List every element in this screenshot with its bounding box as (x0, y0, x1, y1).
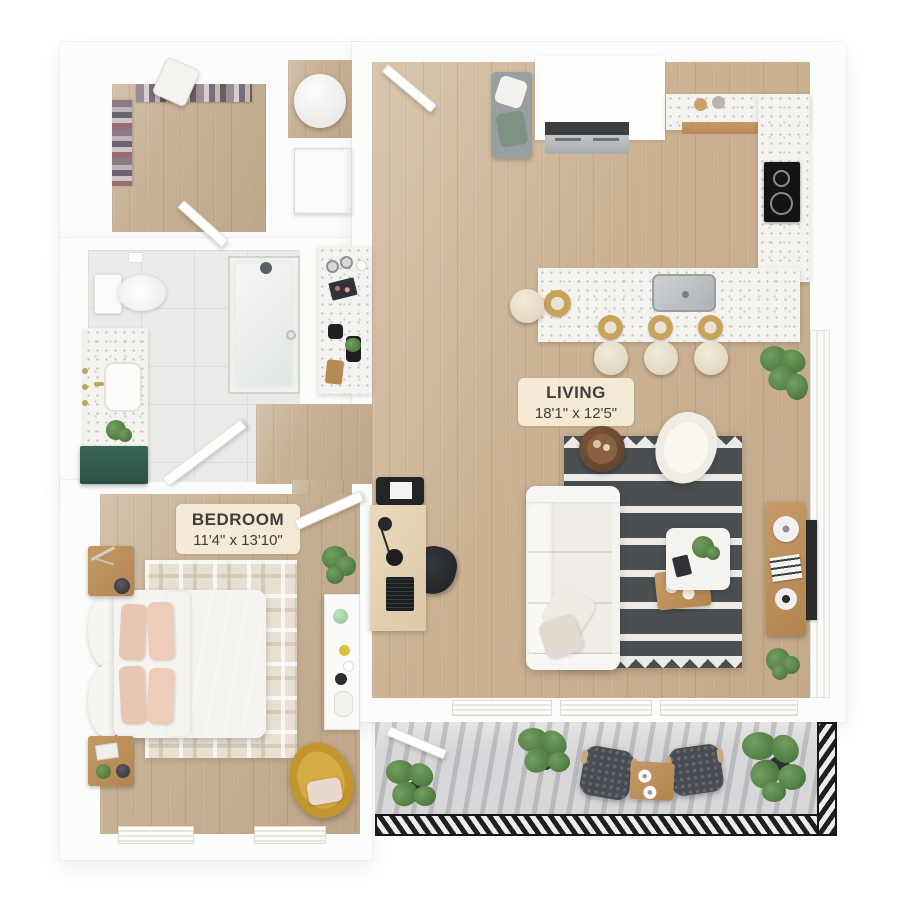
bed-pillow-4 (147, 668, 175, 725)
clothes-rail-left (112, 100, 132, 186)
burner-large (770, 192, 793, 215)
nook-glass-2 (340, 256, 353, 269)
sofa-armrest-bottom (526, 654, 620, 670)
gold-fixture-1 (82, 368, 88, 374)
dresser (324, 594, 360, 730)
patio-table (629, 761, 675, 801)
record-player (773, 516, 799, 542)
patio-chair-1 (578, 744, 636, 802)
dresser-tray (334, 691, 353, 717)
floor-plan: LIVING 18'1" x 12'5" (0, 0, 900, 900)
bedroom-dimensions: 11'4" x 13'10" (193, 532, 283, 549)
counter-plate-1 (694, 98, 707, 111)
bed-pillow-2 (147, 602, 175, 661)
place-setting-3 (648, 315, 673, 340)
nightstand-lamp-2 (116, 764, 130, 778)
place-setting-4 (698, 315, 723, 340)
water-heater (294, 74, 346, 128)
nightstand-books (95, 743, 119, 761)
living-window-bottom-1 (452, 700, 552, 716)
sink-drain (682, 291, 689, 298)
ottoman-book (672, 554, 692, 577)
burner-small (773, 170, 790, 187)
balcony-railing-bottom (375, 814, 837, 836)
bedroom-window-2 (254, 826, 326, 844)
island-sink (652, 274, 716, 312)
vinyl-records (769, 554, 802, 582)
living-room-name: LIVING (546, 383, 606, 403)
bedroom-window-1 (118, 826, 194, 844)
bed-pillow-1 (119, 603, 148, 660)
shower (228, 256, 300, 394)
vanity-cabinet-green (80, 446, 148, 484)
shower-head (260, 262, 272, 274)
counter-plate-2 (712, 96, 725, 109)
nightstand-top (88, 546, 134, 596)
laptop (386, 577, 414, 611)
nook-cutting-board (325, 359, 344, 385)
sofa-armrest-top (526, 486, 620, 502)
ottoman (666, 528, 730, 590)
refrigerator (545, 122, 629, 154)
bedroom-label: BEDROOM 11'4" x 13'10" (176, 504, 300, 554)
printer (376, 477, 424, 505)
speaker-disc (775, 588, 797, 610)
living-window-bottom-3 (660, 700, 798, 716)
desk (370, 505, 426, 631)
cooktop (764, 162, 800, 222)
ottoman-plant-leaf (706, 546, 720, 560)
desk-lamp-head (386, 549, 403, 566)
nook-speaker (328, 324, 343, 339)
place-setting-1 (544, 290, 571, 317)
counter-nook (318, 246, 372, 394)
vanity-plant-2 (118, 428, 132, 442)
bed-pillow-3 (119, 665, 148, 724)
desk-lamp-arm (380, 527, 390, 552)
bar-stool-3 (644, 341, 678, 375)
gold-fixture-3 (82, 400, 88, 406)
bedroom-name: BEDROOM (192, 510, 284, 530)
washer-dryer (294, 148, 352, 214)
patio-cup-1 (638, 769, 652, 783)
nook-dish (356, 260, 367, 271)
side-table (579, 426, 625, 472)
gold-fixture-2 (82, 384, 88, 390)
toilet-paper (128, 252, 143, 263)
balcony-railing-right (817, 722, 837, 836)
hallway-floor (256, 404, 372, 484)
dresser-plant-sprig (333, 609, 348, 624)
place-setting-2 (598, 315, 623, 340)
bench-pillow-green (495, 110, 528, 148)
shower-drain (286, 330, 296, 340)
vanity-sink (104, 362, 142, 412)
dresser-sphere-black (335, 673, 347, 685)
patio-chair-2 (667, 743, 725, 798)
living-window-right (810, 330, 830, 698)
vanity-faucet (94, 382, 104, 386)
nook-plant (345, 338, 361, 352)
nook-glass-1 (326, 260, 339, 273)
nook-magazine (328, 277, 358, 301)
dresser-candle-yellow (339, 645, 350, 656)
living-room-label: LIVING 18'1" x 12'5" (518, 378, 634, 426)
dresser-dish (343, 661, 354, 672)
toilet-bowl (118, 275, 166, 311)
bar-stool-2 (594, 341, 628, 375)
living-window-bottom-2 (560, 700, 652, 716)
bar-stool-4 (694, 341, 728, 375)
bar-stool-1 (510, 289, 544, 323)
nightstand-plant (96, 764, 111, 779)
vanity-counter (84, 328, 148, 448)
patio-cup-2 (643, 786, 657, 800)
sofa (526, 486, 620, 670)
living-room-dimensions: 18'1" x 12'5" (535, 405, 617, 422)
nightstand-lamp (114, 578, 130, 594)
media-console (766, 502, 806, 636)
nightstand-bottom (88, 736, 134, 786)
